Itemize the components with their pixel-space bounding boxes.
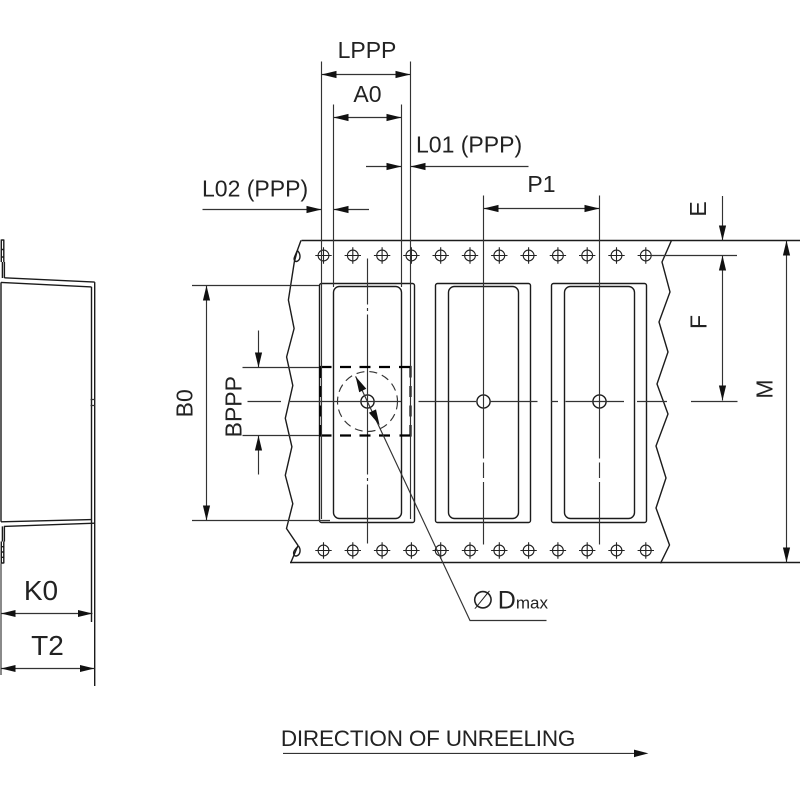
svg-text:L02 (PPP): L02 (PPP): [202, 176, 308, 202]
svg-text:E: E: [685, 201, 711, 216]
svg-text:T2: T2: [31, 630, 64, 661]
svg-text:F: F: [686, 315, 712, 329]
svg-text:DIRECTION OF UNREELING: DIRECTION OF UNREELING: [281, 726, 575, 751]
svg-text:LPPP: LPPP: [338, 37, 397, 63]
svg-text:L01 (PPP): L01 (PPP): [416, 132, 522, 158]
svg-text:K0: K0: [24, 575, 58, 606]
svg-text:A0: A0: [353, 81, 381, 107]
svg-text:P1: P1: [527, 171, 555, 197]
svg-text:BPPP: BPPP: [221, 376, 247, 437]
svg-text:B0: B0: [172, 389, 198, 417]
svg-text:M: M: [752, 379, 778, 398]
